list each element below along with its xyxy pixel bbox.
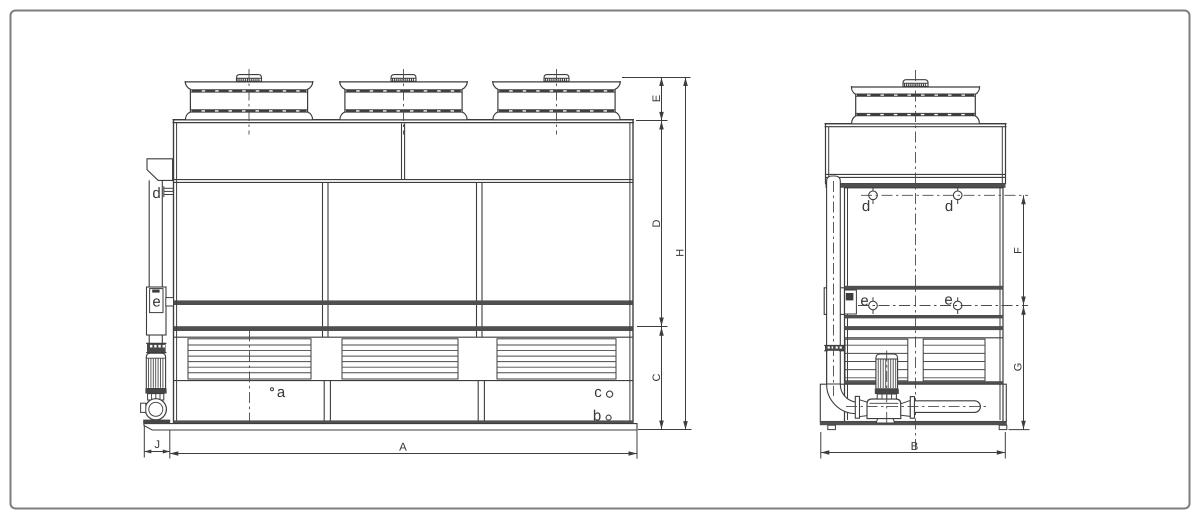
svg-text:d: d	[945, 198, 953, 215]
svg-text:A: A	[399, 442, 407, 454]
svg-text:d: d	[862, 198, 870, 215]
svg-text:e: e	[860, 292, 868, 309]
svg-text:C: C	[651, 373, 663, 381]
svg-text:J: J	[154, 439, 160, 451]
svg-text:d: d	[152, 185, 160, 202]
svg-text:D: D	[651, 219, 663, 227]
svg-text:b: b	[593, 407, 601, 424]
svg-text:H: H	[675, 249, 687, 257]
svg-text:c: c	[594, 384, 602, 401]
svg-text:F: F	[1013, 247, 1025, 254]
svg-text:B: B	[911, 441, 919, 453]
svg-text:e: e	[944, 291, 952, 308]
svg-text:E: E	[651, 95, 663, 102]
svg-text:e: e	[152, 293, 160, 310]
svg-text:G: G	[1013, 363, 1025, 372]
svg-text:a: a	[277, 384, 286, 401]
